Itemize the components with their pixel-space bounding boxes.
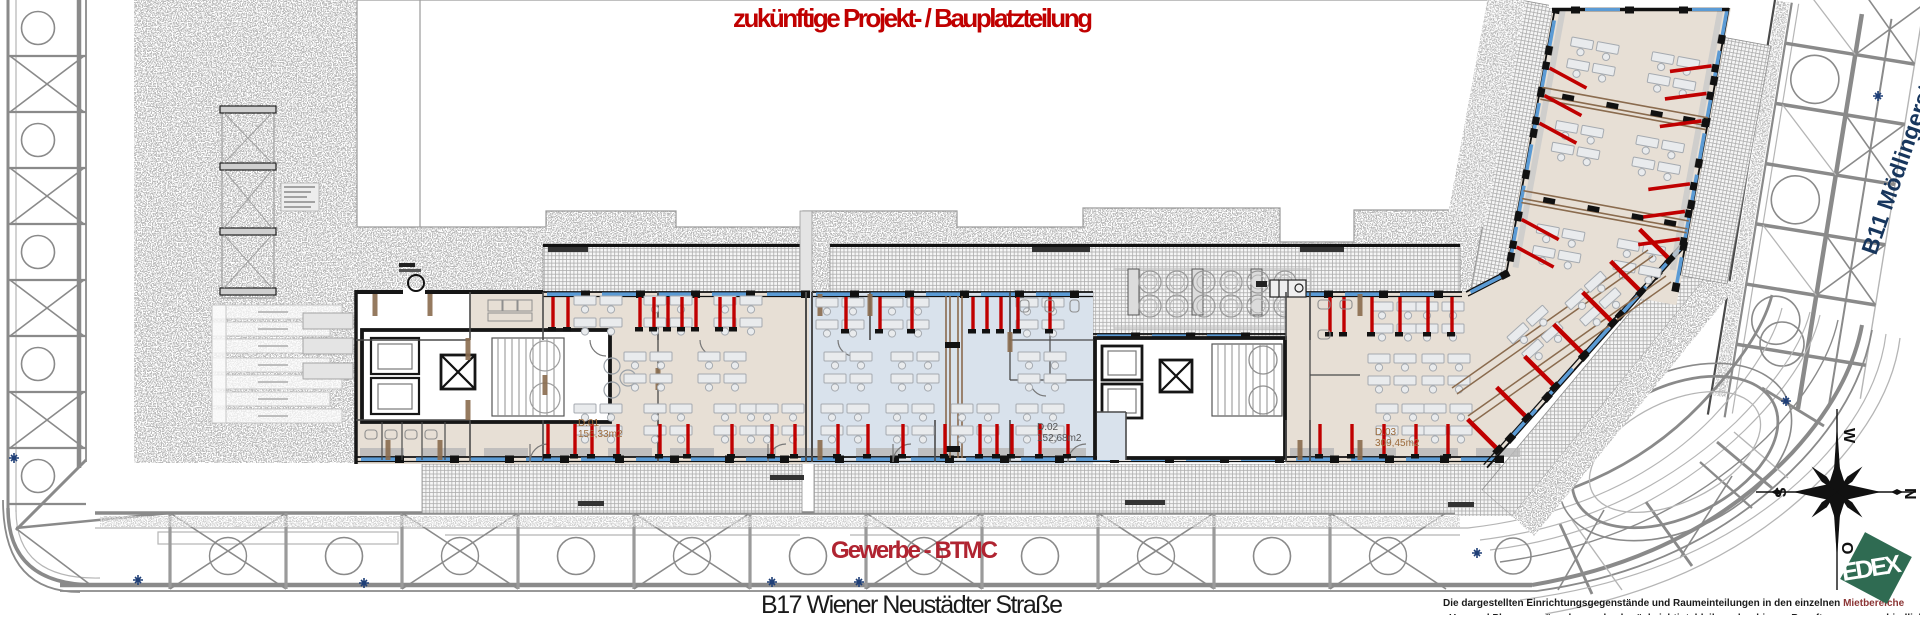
svg-text:Die dargestellten Einrichtungs: Die dargestellten Einrichtungsgegenständ… xyxy=(1443,598,1905,609)
svg-text:309,45m2: 309,45m2 xyxy=(1375,438,1420,449)
svg-text:152,68m2: 152,68m2 xyxy=(1037,433,1082,444)
svg-text:Gewerbe - BTMC: Gewerbe - BTMC xyxy=(831,537,998,564)
svg-text:N: N xyxy=(1901,488,1918,500)
svg-text:D.02: D.02 xyxy=(1037,422,1059,433)
svg-text:S: S xyxy=(1771,487,1788,498)
svg-text:D.03: D.03 xyxy=(1375,427,1397,438)
svg-text:156,33m2: 156,33m2 xyxy=(578,429,623,440)
svg-text:zukünftige Projekt- / Bauplatz: zukünftige Projekt- / Bauplatzteilung xyxy=(733,3,1093,33)
svg-text:B17 Wiener Neustädter Straße: B17 Wiener Neustädter Straße xyxy=(761,591,1063,615)
svg-text:W: W xyxy=(1840,428,1857,444)
svg-text:D.01: D.01 xyxy=(578,418,600,429)
svg-text:O: O xyxy=(1838,542,1855,554)
